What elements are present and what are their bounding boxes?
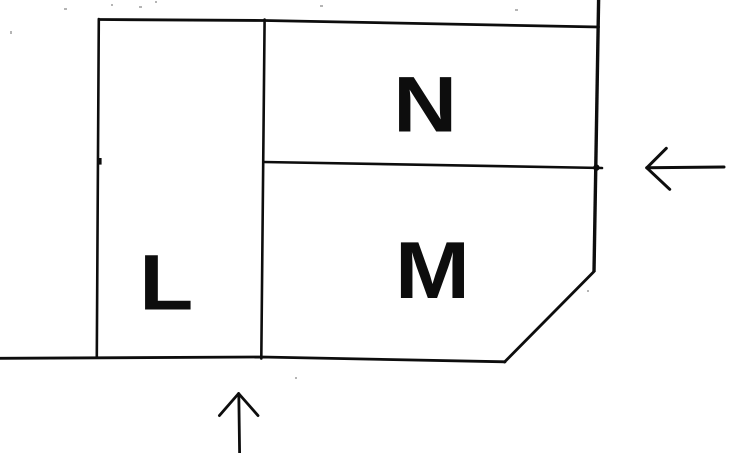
svg-text:L: L: [139, 238, 193, 326]
svg-text:N: N: [393, 60, 457, 148]
svg-text:M: M: [395, 225, 470, 316]
